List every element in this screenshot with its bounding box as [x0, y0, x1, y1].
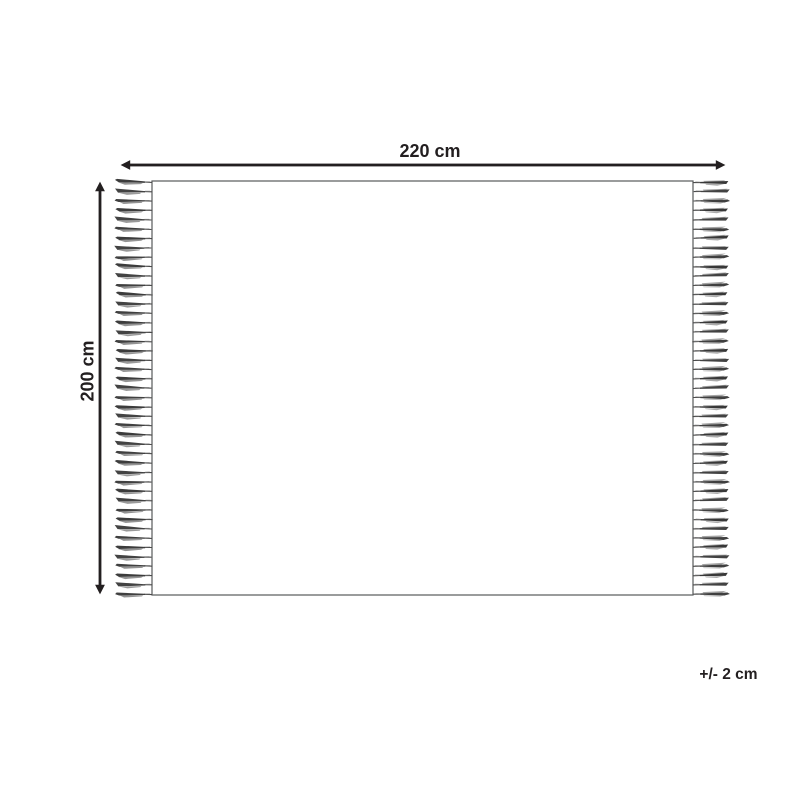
svg-text:+/- 2 cm: +/- 2 cm [699, 666, 757, 683]
svg-text:220 cm: 220 cm [399, 141, 460, 161]
svg-text:200 cm: 200 cm [78, 340, 98, 401]
